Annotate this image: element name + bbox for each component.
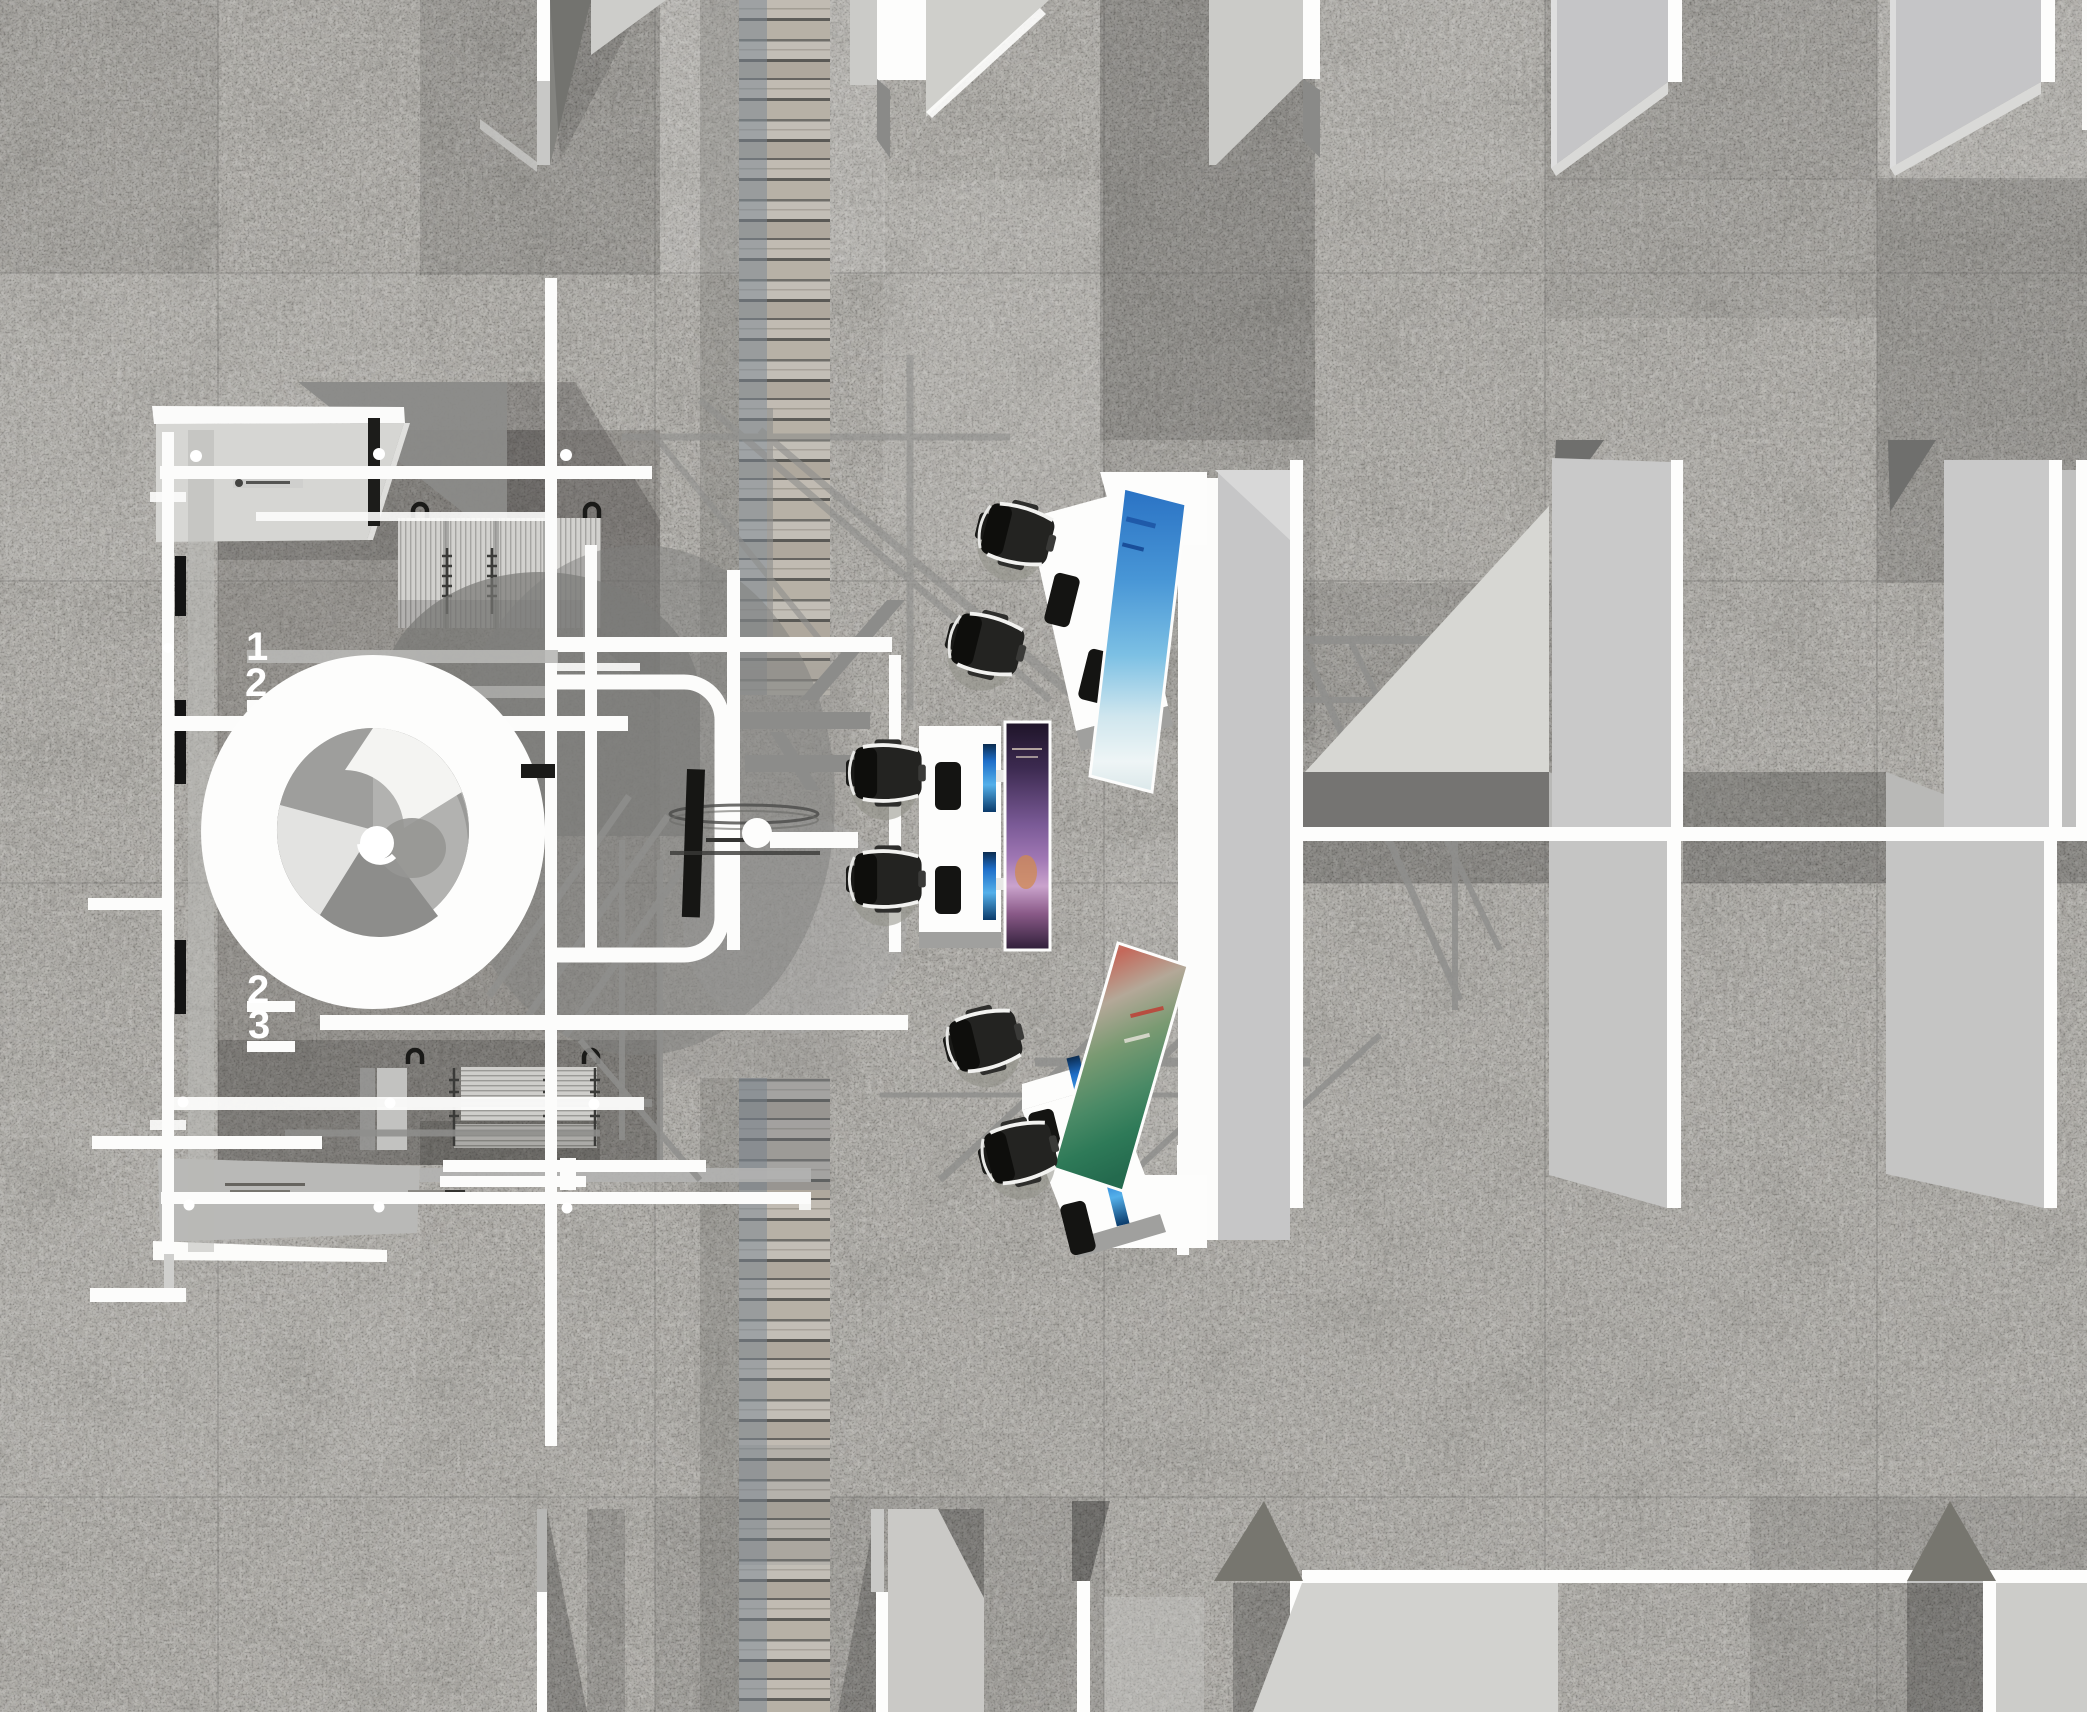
svg-text:3: 3 — [248, 1003, 270, 1047]
